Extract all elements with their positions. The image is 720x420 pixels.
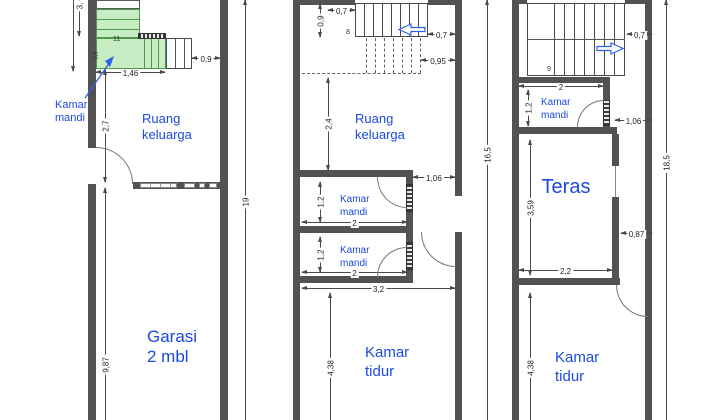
- p1-window-4: [209, 183, 217, 188]
- p1-callout-arrow: [76, 52, 118, 100]
- p2-dim-stair-left: 0,9: [320, 4, 321, 37]
- p2-room-label-kamar-mandi-2: Kamar mandi: [340, 244, 369, 270]
- p3-room-label-kamar-mandi: Kamar mandi: [541, 96, 570, 122]
- p2-top-wall-left: [293, 0, 355, 5]
- p1-stair-green-treads: [138, 39, 165, 68]
- p1-dim-top-cut: 3,: [79, 0, 80, 36]
- p3-room-label-kamar-tidur: Kamar tidur: [555, 348, 599, 386]
- p2-bath2-door-arc: [377, 247, 407, 277]
- p3-dim-total-height: 18,5: [666, 0, 667, 420]
- p1-left-wall-lower: [88, 184, 96, 420]
- p1-room-label-garasi: Garasi 2 mbl: [147, 327, 197, 367]
- p3-top-wall-right: [625, 0, 652, 4]
- p1-right-wall: [220, 0, 228, 420]
- p2-dim-interior-width: 3,2: [302, 288, 455, 289]
- p2-bath1-door-arc: [377, 177, 407, 208]
- p2-dim-bath2-height: 1,2: [320, 237, 321, 272]
- p1-dim-stair-right: 0,9: [192, 58, 220, 59]
- p1-dim-top-outer: [73, 0, 74, 71]
- p2-dash-tread: [384, 38, 385, 73]
- p2-stair-direction-arrow-left: [398, 23, 426, 36]
- p3-bedroom-door-arc: [616, 285, 648, 317]
- p1-window-3: [199, 183, 205, 188]
- p3-dim-bath-width: 2: [519, 86, 603, 87]
- p3-dim-teras-height: 3,59: [530, 140, 531, 275]
- p3-dim-bedroom-height: 4,38: [530, 293, 531, 420]
- p2-dim-stair-right: 0,7: [428, 34, 455, 35]
- p2-dash-tread: [393, 38, 394, 73]
- p3-teras-right-wall-upper: [612, 134, 619, 166]
- p1-stair-top-tread: [96, 0, 140, 9]
- p1-door-threshold-hatch: [138, 33, 166, 39]
- p2-right-wall-upper: [455, 0, 462, 196]
- p3-stair-divider: [527, 39, 625, 40]
- p1-dim-total-height: 19: [245, 0, 246, 420]
- p2-dash-tread: [411, 38, 412, 73]
- p2-dim-bath1-height: 1,2: [320, 182, 321, 222]
- p2-room-label-ruang-keluarga: Ruang keluarga: [355, 111, 405, 143]
- p3-bath-door-hatch: [603, 100, 610, 126]
- p3-wall-bath-teras: [512, 127, 617, 134]
- p2-dash-tread: [375, 38, 376, 73]
- p2-room-label-kamar-tidur: Kamar tidur: [365, 343, 409, 381]
- p1-stair-green-flight: [96, 9, 140, 38]
- p3-dim-stair-right: 0,7: [627, 34, 652, 35]
- p3-stair-direction-arrow-right: [596, 42, 624, 55]
- p1-window-2: [184, 183, 195, 188]
- p3-teras-railing: [615, 166, 616, 197]
- p3-bath-door-arc: [577, 100, 604, 127]
- p3-left-wall: [512, 0, 519, 420]
- p1-stair-white-flight: [166, 38, 192, 69]
- p3-dim-door-right: 1,06: [615, 120, 652, 121]
- p3-right-wall: [645, 0, 652, 420]
- p2-step-count-label: 8: [346, 29, 350, 37]
- p3-step-count-label: 9: [547, 66, 551, 74]
- p2-dim-total-height: 16,5: [487, 0, 488, 420]
- p3-wall-teras-bedroom: [512, 278, 620, 285]
- p1-entry-door-arc: [96, 147, 133, 184]
- p1-step-count-label: 11: [113, 36, 120, 44]
- p3-dim-teras-right: 0,87: [621, 233, 652, 234]
- p2-left-wall: [293, 0, 300, 420]
- p1-room-label-kamar-mandi: Kamar mandi: [55, 99, 87, 125]
- p2-dim-landing-right: 0,95: [421, 60, 455, 61]
- p2-bath1-door-hatch: [406, 184, 413, 212]
- floorplan-canvas: 11 0,9 1,46 0,9 3, 2,7 9,87 19 Kamar man…: [0, 0, 720, 420]
- p2-bath2-door-hatch: [406, 242, 413, 270]
- p2-dim-living-height: 2,4: [328, 78, 329, 170]
- p2-bedroom-door-arc: [421, 232, 456, 267]
- p3-top-wall-left: [512, 0, 527, 4]
- p2-dash-tread: [402, 38, 403, 73]
- p2-dash-tread: [366, 38, 367, 73]
- p2-dim-bedroom-height: 4,38: [330, 293, 331, 420]
- p2-top-wall-right: [428, 0, 462, 5]
- p3-teras-right-wall-lower: [612, 197, 619, 281]
- p2-dash-landing-edge: [302, 73, 421, 74]
- p2-dim-bath1-width: 2: [302, 222, 407, 223]
- p1-window-1: [140, 183, 177, 188]
- p3-room-label-teras: Teras: [520, 176, 612, 198]
- p3-dim-bath-height: 1,2: [528, 90, 529, 126]
- p2-room-label-kamar-mandi-1: Kamar mandi: [340, 193, 369, 219]
- p2-dash-tread: [420, 38, 421, 73]
- p1-room-label-ruang-keluarga: Ruang keluarga: [142, 111, 192, 143]
- p2-right-wall-lower: [455, 232, 462, 420]
- p2-dim-door-right: 1,06: [413, 177, 455, 178]
- p2-wall-living-bath: [300, 170, 413, 177]
- p2-dim-stair-top: 0,7: [328, 10, 355, 11]
- p3-dim-teras-width: 2,2: [519, 270, 612, 271]
- p1-dim-garage-height: 9,87: [105, 188, 106, 420]
